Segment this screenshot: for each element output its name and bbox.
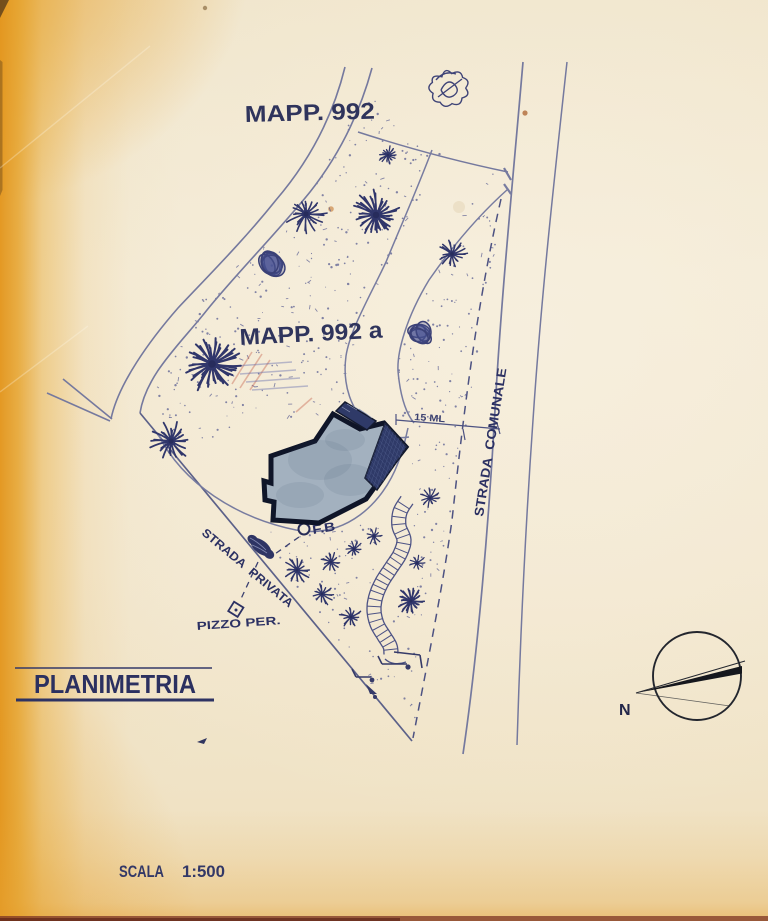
svg-text:PIZZO PER.: PIZZO PER. [196,615,281,633]
svg-text:MAPP. 992 a: MAPP. 992 a [239,317,383,350]
svg-text:N: N [619,702,631,719]
svg-text:SCALA: SCALA [119,863,164,881]
svg-text:MAPP. 992: MAPP. 992 [244,98,375,127]
svg-text:1:500: 1:500 [182,863,225,881]
svg-text:15 ML: 15 ML [414,412,446,425]
svg-text:PLANIMETRIA: PLANIMETRIA [34,669,196,699]
